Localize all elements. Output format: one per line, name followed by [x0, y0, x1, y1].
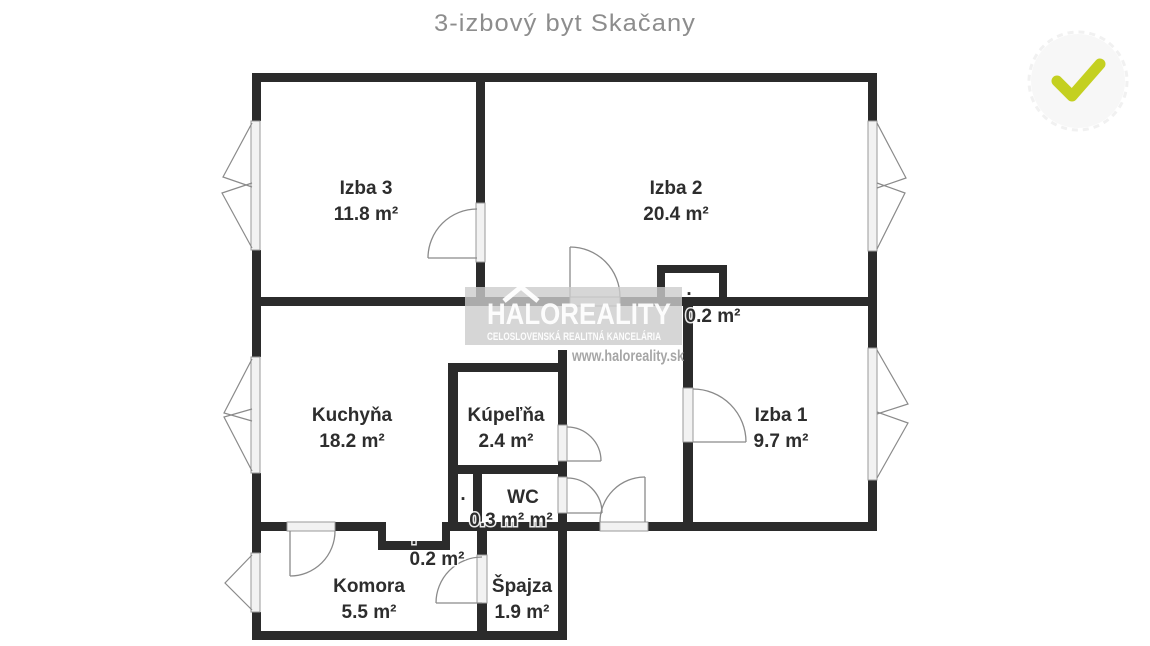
- door-swing: [567, 478, 602, 513]
- walls: [252, 73, 877, 640]
- watermark-subtitle: CELOSLOVENSKÁ REALITNÁ KANCELÁRIA: [487, 330, 661, 343]
- door-swing: [567, 427, 601, 461]
- window-icon: [868, 121, 877, 251]
- room-area-komora: 5.5 m²: [342, 602, 397, 623]
- door-swing: [600, 477, 645, 522]
- door-swing: [290, 531, 335, 576]
- niche-top-dot: .: [686, 279, 691, 300]
- room-label-kupelna: Kúpeľňa: [468, 405, 545, 426]
- window-icon: [868, 348, 877, 480]
- approval-badge: [1029, 32, 1127, 130]
- room-area-kuchyna: 18.2 m²: [319, 431, 384, 452]
- room-area-spajza: 1.9 m²: [495, 602, 550, 623]
- watermark-brand: HALOREALITY: [487, 298, 671, 331]
- door-threshold: [287, 522, 335, 531]
- room-area-izba2: 20.4 m²: [643, 204, 708, 225]
- shaft-dot: .: [460, 484, 465, 505]
- room-label-izba3: Izba 3: [340, 178, 393, 199]
- window-icon: [251, 121, 260, 250]
- floor-plan: 3-izbový byt Skačany: [0, 0, 1150, 646]
- window-icon: [251, 357, 260, 473]
- room-label-komora: Komora: [333, 576, 405, 597]
- door-threshold: [558, 425, 567, 461]
- room-area-izba3: 11.8 m²: [334, 204, 398, 225]
- door-symbols: [287, 203, 746, 603]
- watermark-website: www.haloreality.sk: [571, 348, 684, 365]
- door-threshold: [558, 477, 567, 513]
- room-label-kuchyna: Kuchyňa: [312, 405, 393, 426]
- door-threshold: [476, 203, 485, 262]
- niche-bottom-area: 0.2 m²: [410, 549, 465, 570]
- door-threshold: [683, 388, 693, 442]
- room-area-wc: 0.3 m² m²: [469, 510, 552, 531]
- niche-top-area: 0.2 m²: [686, 306, 741, 327]
- door-swing: [693, 389, 746, 442]
- room-area-kupelna: 2.4 m²: [479, 431, 534, 452]
- room-area-izba1: 9.7 m²: [754, 431, 809, 452]
- room-label-spajza: Špajza: [492, 575, 553, 597]
- window-icon: [251, 553, 260, 612]
- floorplan-page: 3-izbový byt Skačany: [0, 0, 1150, 646]
- door-swing: [428, 209, 477, 258]
- room-label-izba1: Izba 1: [755, 405, 808, 426]
- room-label-wc: WC: [507, 487, 539, 508]
- page-title: 3-izbový byt Skačany: [434, 10, 696, 37]
- watermark: HALOREALITY CELOSLOVENSKÁ REALITNÁ KANCE…: [465, 287, 684, 365]
- door-threshold: [477, 555, 487, 603]
- room-label-izba2: Izba 2: [650, 178, 703, 199]
- door-threshold: [600, 522, 648, 531]
- niche-bottom-dot: .: [411, 528, 416, 549]
